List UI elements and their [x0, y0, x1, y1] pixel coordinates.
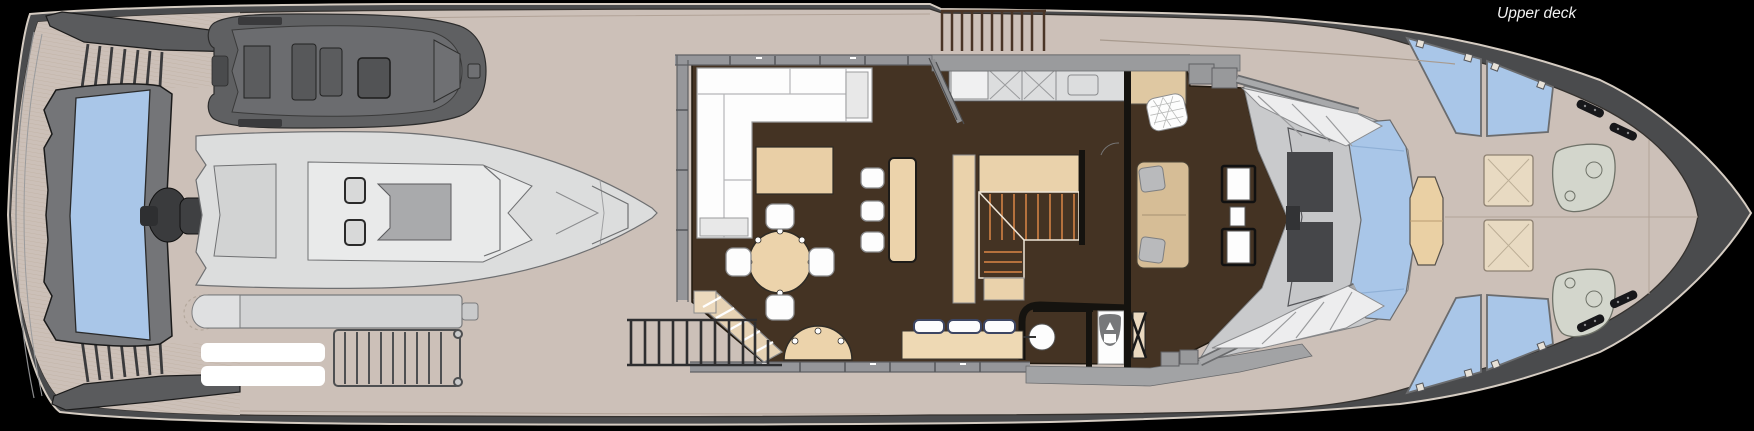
svg-text:Upper deck: Upper deck [1497, 5, 1578, 22]
